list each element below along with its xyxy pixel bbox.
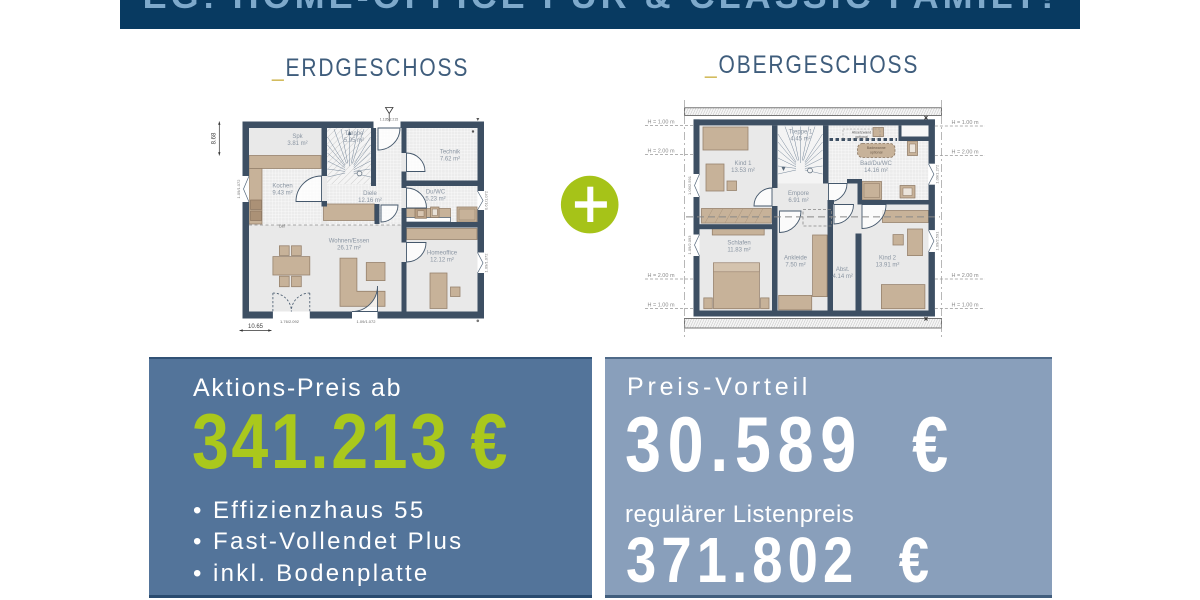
svg-text:3.81 m²: 3.81 m² xyxy=(287,141,307,147)
svg-text:Wohnen/Essen: Wohnen/Essen xyxy=(329,239,370,245)
svg-text:Schlafen: Schlafen xyxy=(727,241,750,247)
svg-text:1.09/2.591: 1.09/2.591 xyxy=(687,175,692,195)
svg-text:14.16 m²: 14.16 m² xyxy=(864,168,888,174)
svg-text:Empore: Empore xyxy=(788,191,810,197)
svg-text:Bad/Du/WC: Bad/Du/WC xyxy=(860,161,892,167)
svg-text:1.09/1.072: 1.09/1.072 xyxy=(484,253,489,273)
svg-text:Technik: Technik xyxy=(440,150,461,156)
svg-text:7.50 m²: 7.50 m² xyxy=(785,263,805,269)
svg-text:Bef: Bef xyxy=(279,224,286,229)
svg-text:Kind 2: Kind 2 xyxy=(879,256,897,262)
svg-text:Homeoffice: Homeoffice xyxy=(427,251,458,257)
svg-text:5.23 m²: 5.23 m² xyxy=(425,197,445,203)
svg-text:Ankleide: Ankleide xyxy=(784,256,808,262)
svg-text:Abst.: Abst. xyxy=(836,267,850,273)
svg-text:Spk: Spk xyxy=(292,134,303,140)
svg-text:9.43 m²: 9.43 m² xyxy=(272,191,292,197)
svg-text:1.09/1.072: 1.09/1.072 xyxy=(357,319,377,324)
svg-text:1.09/2.591: 1.09/2.591 xyxy=(935,231,940,251)
svg-text:H = 1.00 m: H = 1.00 m xyxy=(951,303,978,309)
svg-text:4.14 m²: 4.14 m² xyxy=(833,274,853,280)
svg-text:Treppe 1: Treppe 1 xyxy=(789,130,813,136)
svg-text:1.09/1.272: 1.09/1.272 xyxy=(935,164,940,184)
svg-text:1.135/2.215: 1.135/2.215 xyxy=(380,117,399,121)
svg-text:13.91 m²: 13.91 m² xyxy=(876,263,900,269)
svg-text:1.76/2.092: 1.76/2.092 xyxy=(280,319,300,324)
svg-text:1.09/2.093: 1.09/2.093 xyxy=(687,235,692,255)
svg-text:5.95 m²: 5.95 m² xyxy=(344,138,364,144)
svg-text:H = 1.00 m: H = 1.00 m xyxy=(647,119,674,125)
svg-text:10.65: 10.65 xyxy=(248,324,264,330)
svg-text:Du/WC: Du/WC xyxy=(426,190,446,196)
svg-text:4.45 m²: 4.45 m² xyxy=(790,137,810,143)
svg-text:H = 2.00 m: H = 2.00 m xyxy=(951,273,978,279)
svg-text:H = 2.00 m: H = 2.00 m xyxy=(647,273,674,279)
svg-text:H = 2.00 m: H = 2.00 m xyxy=(951,149,978,155)
svg-text:Kind 1: Kind 1 xyxy=(734,161,752,167)
svg-text:Treppe: Treppe xyxy=(345,131,364,137)
svg-text:12.16 m²: 12.16 m² xyxy=(358,198,382,204)
svg-text:H = 2.00 m: H = 2.00 m xyxy=(647,148,674,154)
svg-text:7.62 m²: 7.62 m² xyxy=(440,157,460,163)
svg-text:8.68: 8.68 xyxy=(212,132,218,144)
svg-text:Diele: Diele xyxy=(363,191,377,197)
svg-text:H = 1.00 m: H = 1.00 m xyxy=(647,303,674,309)
svg-text:H = 1.00 m: H = 1.00 m xyxy=(951,120,978,126)
svg-text:11.83 m²: 11.83 m² xyxy=(727,248,750,254)
svg-text:Badewanne: Badewanne xyxy=(867,146,886,150)
svg-text:0.61/1.072: 0.61/1.072 xyxy=(484,190,489,210)
svg-text:Kochen: Kochen xyxy=(272,184,292,190)
svg-text:12.12 m²: 12.12 m² xyxy=(430,258,454,264)
svg-text:13.53 m²: 13.53 m² xyxy=(731,168,755,174)
svg-text:6.91 m²: 6.91 m² xyxy=(788,198,808,204)
svg-text:1.09/1.072: 1.09/1.072 xyxy=(236,179,241,199)
svg-text:optional: optional xyxy=(870,151,883,155)
svg-text:26.17 m²: 26.17 m² xyxy=(337,246,361,252)
svg-text:optional: optional xyxy=(855,135,868,139)
